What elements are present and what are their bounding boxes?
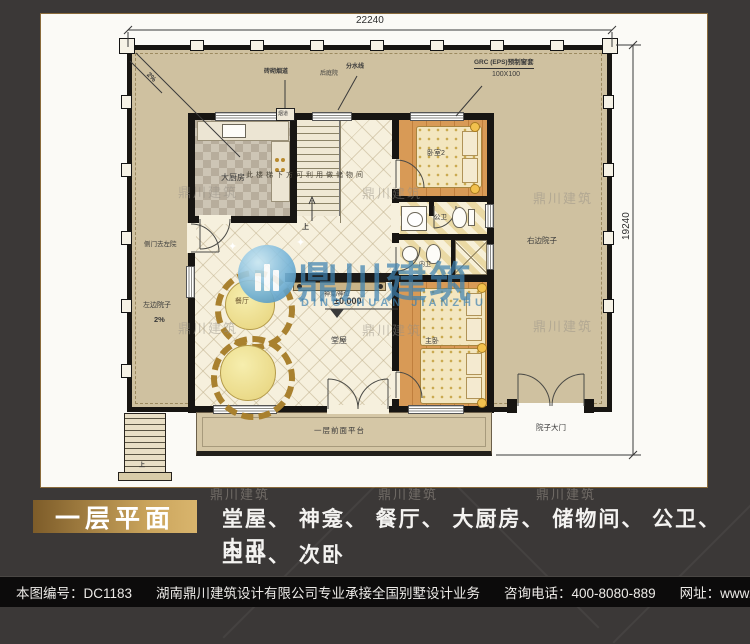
wall-pillar [603,299,614,313]
ext-stairs-up-label: 上 [139,463,145,469]
grc-size-label: 100X100 [492,71,520,78]
hall-label: 堂屋 [331,337,347,345]
wall-pillar [121,299,132,313]
water-line-label: 分水线 [346,64,364,70]
stove-icon [274,156,287,184]
gate-post [584,399,594,413]
window [408,405,464,414]
wall-pillar [310,40,324,51]
yard-gate-opening [516,403,585,414]
dimension-height-label: 19240 [622,212,632,240]
wall-pillar [121,364,132,378]
wall-segment [392,115,399,160]
wall-segment [392,398,399,408]
watermark-text: 鼎川建筑 [178,318,238,337]
stairs-up-label: 上 [302,224,309,231]
side-door-opening [187,223,196,253]
wall-pillar [190,40,204,51]
phone-number: 咨询电话：400-8080-889 [504,582,656,602]
toilet-icon [452,207,467,228]
wall-pillar [603,231,614,245]
public-bath-label: 公卫 [434,215,447,222]
bedside-lamp [477,398,487,408]
flue-box: 烟道 [276,108,295,121]
back-yard-label: 后庭院 [320,71,338,77]
pillow [466,377,482,399]
watermark-text: 鼎川建筑 [378,484,438,503]
bedside-lamp [477,283,487,293]
main-door-opening [327,405,389,414]
bedroom2-label: 卧室2 [427,150,445,157]
staircase [297,120,340,216]
plan-title-badge: 一层平面 [33,500,197,533]
window [485,204,494,228]
kitchen-label: 大厨房 [221,174,245,182]
window [410,112,464,121]
yard-gate-label: 院子大门 [536,424,566,432]
dining-label: 餐厅 [235,298,249,305]
window [312,112,352,121]
watermark-text: 鼎川建筑 [362,320,422,339]
dimension-width-label: 22240 [356,16,384,26]
bedside-lamp [470,122,480,132]
wall-pillar [603,163,614,177]
wall-pillar [490,40,504,51]
pillow [462,158,478,183]
sparkle-icon: ✦ [296,236,305,249]
wall-pillar [121,231,132,245]
watermark-brand-en: DINGCHUAN JIANZHU [301,297,487,309]
platform-label: 一层前面平台 [314,427,365,435]
corner-pillar [602,38,618,54]
left-yard-label: 左边院子 [143,302,171,309]
wall-pillar [370,40,384,51]
side-door-label: 侧门去左院 [144,242,177,249]
flue-label: 烟道 [278,112,295,117]
room-list-line2: 主卧、 次卧 [222,539,345,569]
bedside-lamp [470,184,480,194]
watermark-text: 鼎川建筑 [178,182,238,201]
sparkle-icon: ✦ [228,240,237,253]
pillow [466,318,482,341]
watermark-text: 鼎川建筑 [533,316,593,335]
wall-pillar [121,95,132,109]
stair-base [118,472,172,481]
right-yard-label: 右边院子 [527,237,557,245]
wall-pillar [250,40,264,51]
wall-pillar [550,40,564,51]
corner-pillar [119,38,135,54]
wall-pillar [121,163,132,177]
watermark-text: 鼎川建筑 [210,484,270,503]
wall-pillar [603,95,614,109]
dingchuan-logo-icon [238,245,296,303]
watermark-text: 鼎川建筑 [362,183,422,202]
chimney-label: 砖砌烟道 [264,69,288,75]
wall-pillar [430,40,444,51]
pillow [462,131,478,156]
pillow [466,353,482,375]
plan-title: 一层平面 [55,499,175,535]
toilet-tank [468,209,475,226]
watermark-text: 鼎川建筑 [536,484,596,503]
master-door-opening [391,371,400,399]
bedside-lamp [477,343,487,353]
website-url: 网址：www.bstzcs.com [680,582,750,602]
gate-post [507,399,517,413]
footer-bar: 本图编号：DC1183 湖南鼎川建筑设计有限公司专业承接全国别墅设计业务 咨询电… [0,576,750,607]
sheet-number: 本图编号：DC1183 [16,582,132,602]
window [186,266,195,298]
public-bath-opening [391,203,400,233]
left-yard-slope-label: 2% [154,316,165,324]
kitchen-door-opening [199,215,231,224]
grc-label: GRC (EPS)预制窗套 [474,60,534,69]
storage-note-label: 此楼梯下方可利用做储物间 [246,172,366,179]
company-name: 湖南鼎川建筑设计有限公司专业承接全国别墅设计业务 [156,582,480,602]
watermark-text: 鼎川建筑 [533,188,593,207]
master-label: 主卧 [425,338,439,345]
vanity-counter [401,206,427,231]
dining-table [220,345,276,401]
page: { "dims": { "width": "22240", "height": … [0,0,750,607]
kitchen-sink [222,124,246,138]
